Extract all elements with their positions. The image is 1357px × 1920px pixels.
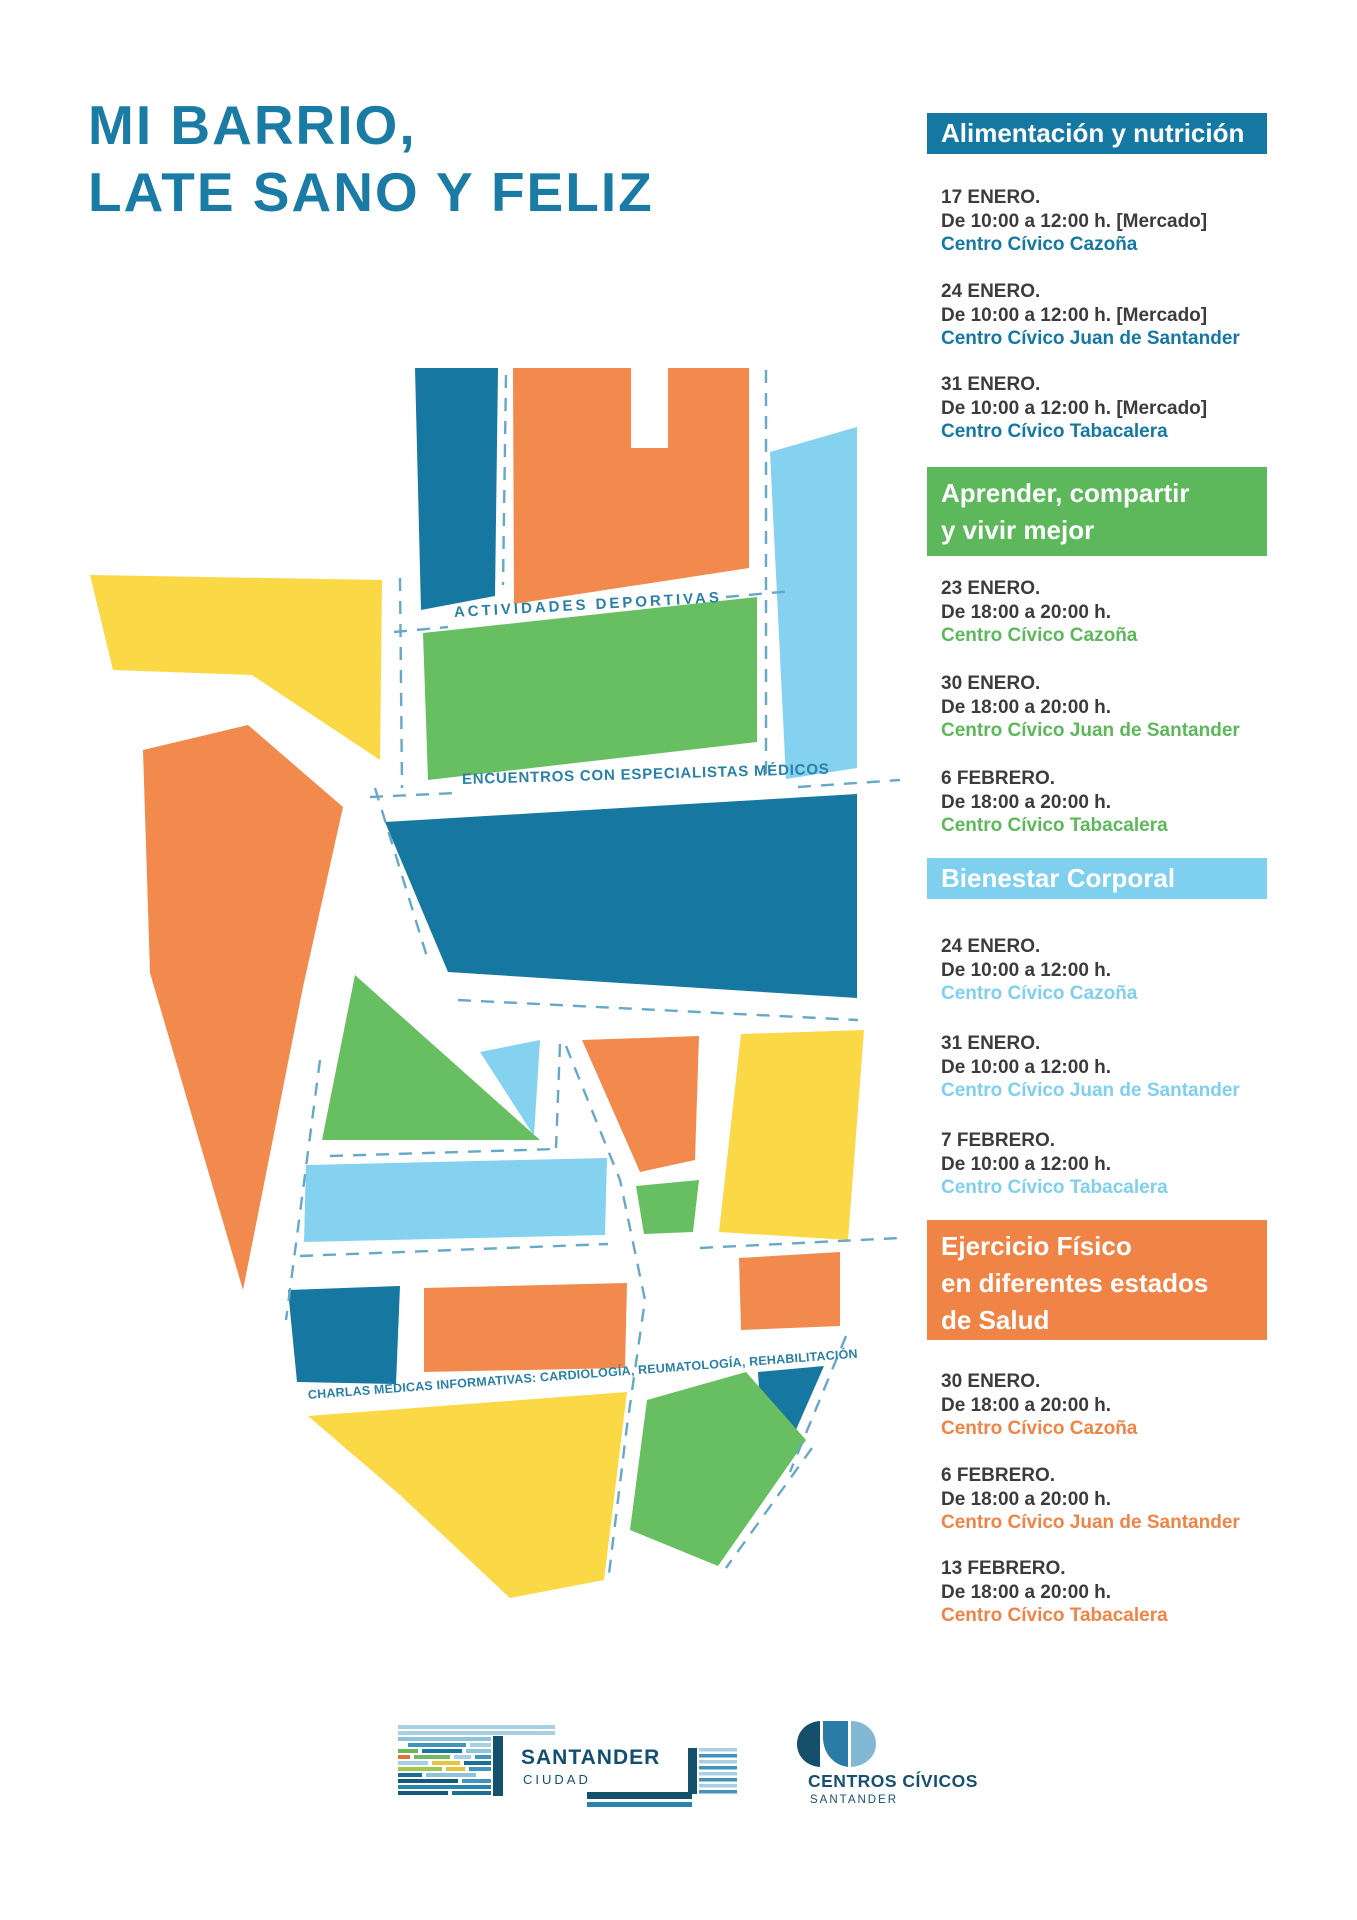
event-entry: 17 ENERO. De 10:00 a 12:00 h. [Mercado] … [941, 186, 1357, 257]
map-block-teal-top [415, 368, 498, 610]
event-entry: 30 ENERO. De 18:00 a 20:00 h. Centro Cív… [941, 1370, 1357, 1441]
event-time: De 18:00 a 20:00 h. [941, 1581, 1357, 1605]
event-entry: 6 FEBRERO. De 18:00 a 20:00 h. Centro Cí… [941, 1464, 1357, 1535]
map-block-lightblue-strip [304, 1158, 607, 1242]
centros-civicos-petals-icon [795, 1705, 915, 1769]
map-block-yellow-bottom [308, 1392, 627, 1598]
event-entry: 7 FEBRERO. De 10:00 a 12:00 h. Centro Cí… [941, 1129, 1357, 1200]
section-header-line: Ejercicio Físico [941, 1228, 1267, 1265]
event-time: De 10:00 a 12:00 h. [Mercado] [941, 210, 1357, 234]
event-place: Centro Cívico Juan de Santander [941, 1511, 1357, 1535]
event-time: De 18:00 a 20:00 h. [941, 791, 1357, 815]
event-time: De 10:00 a 12:00 h. [Mercado] [941, 304, 1357, 328]
section-header-line: Alimentación y nutrición [941, 113, 1267, 154]
event-date: 30 ENERO. [941, 672, 1357, 696]
event-time: De 10:00 a 12:00 h. [941, 1153, 1357, 1177]
section-header-ejercicio: Ejercicio Físico en diferentes estados d… [927, 1220, 1267, 1340]
map-block-orange-top [513, 368, 749, 604]
event-entry: 31 ENERO. De 10:00 a 12:00 h. [Mercado] … [941, 373, 1357, 444]
map-block-green-mid [423, 597, 757, 780]
event-place: Centro Cívico Juan de Santander [941, 1079, 1357, 1103]
santander-logo-sub: CIUDAD [523, 1772, 591, 1787]
map-block-orange-bottom [424, 1283, 627, 1372]
event-date: 13 FEBRERO. [941, 1557, 1357, 1581]
event-entry: 30 ENERO. De 18:00 a 20:00 h. Centro Cív… [941, 672, 1357, 743]
santander-logo-name: SANTANDER [521, 1746, 660, 1770]
section-header-line: y vivir mejor [941, 512, 1267, 549]
event-date: 31 ENERO. [941, 1032, 1357, 1056]
section-header-line: de Salud [941, 1302, 1267, 1339]
event-entry: 24 ENERO. De 10:00 a 12:00 h. [Mercado] … [941, 280, 1357, 351]
event-entry: 13 FEBRERO. De 18:00 a 20:00 h. Centro C… [941, 1557, 1357, 1628]
event-time: De 10:00 a 12:00 h. [941, 959, 1357, 983]
event-time: De 10:00 a 12:00 h. [Mercado] [941, 397, 1357, 421]
event-entry: 31 ENERO. De 10:00 a 12:00 h. Centro Cív… [941, 1032, 1357, 1103]
event-place: Centro Cívico Tabacalera [941, 1604, 1357, 1628]
event-place: Centro Cívico Cazoña [941, 1417, 1357, 1441]
section-header-aprender: Aprender, compartir y vivir mejor [927, 467, 1267, 556]
event-time: De 18:00 a 20:00 h. [941, 1488, 1357, 1512]
event-time: De 18:00 a 20:00 h. [941, 696, 1357, 720]
section-header-bienestar: Bienestar Corporal [927, 858, 1267, 899]
event-entry: 6 FEBRERO. De 18:00 a 20:00 h. Centro Cí… [941, 767, 1357, 838]
event-place: Centro Cívico Tabacalera [941, 814, 1357, 838]
event-entry: 23 ENERO. De 18:00 a 20:00 h. Centro Cív… [941, 577, 1357, 648]
event-time: De 18:00 a 20:00 h. [941, 601, 1357, 625]
santander-ciudad-logo: SANTANDER CIUDAD [396, 1722, 756, 1817]
event-time: De 18:00 a 20:00 h. [941, 1394, 1357, 1418]
section-header-alimentacion: Alimentación y nutrición [927, 113, 1267, 154]
map-block-orange-mid [582, 1036, 699, 1172]
event-date: 31 ENERO. [941, 373, 1357, 397]
event-place: Centro Cívico Cazoña [941, 982, 1357, 1006]
event-place: Centro Cívico Cazoña [941, 624, 1357, 648]
event-entry: 24 ENERO. De 10:00 a 12:00 h. Centro Cív… [941, 935, 1357, 1006]
map-block-teal-center [385, 794, 857, 998]
event-date: 24 ENERO. [941, 935, 1357, 959]
map-block-yellow-right [719, 1030, 864, 1240]
map-block-teal-bottom-left [288, 1286, 400, 1384]
event-time: De 10:00 a 12:00 h. [941, 1056, 1357, 1080]
centros-civicos-logo: CENTROS CÍVICOS SANTANDER [795, 1705, 1055, 1815]
section-header-line: en diferentes estados [941, 1265, 1267, 1302]
section-header-line: Aprender, compartir [941, 475, 1267, 512]
centros-civicos-name: CENTROS CÍVICOS [808, 1771, 978, 1792]
section-header-line: Bienestar Corporal [941, 858, 1267, 899]
event-date: 17 ENERO. [941, 186, 1357, 210]
poster: MI BARRIO, LATE SANO Y FELIZ [0, 0, 1357, 1920]
event-date: 23 ENERO. [941, 577, 1357, 601]
event-place: Centro Cívico Juan de Santander [941, 327, 1357, 351]
event-date: 7 FEBRERO. [941, 1129, 1357, 1153]
event-date: 24 ENERO. [941, 280, 1357, 304]
map-block-lightblue-right [770, 427, 857, 779]
event-place: Centro Cívico Tabacalera [941, 420, 1357, 444]
event-place: Centro Cívico Tabacalera [941, 1176, 1357, 1200]
centros-civicos-sub: SANTANDER [810, 1794, 898, 1806]
event-place: Centro Cívico Cazoña [941, 233, 1357, 257]
map-block-green-small [636, 1180, 699, 1234]
event-date: 30 ENERO. [941, 1370, 1357, 1394]
map-block-orange-right [739, 1252, 840, 1330]
event-date: 6 FEBRERO. [941, 1464, 1357, 1488]
event-date: 6 FEBRERO. [941, 767, 1357, 791]
event-place: Centro Cívico Juan de Santander [941, 719, 1357, 743]
